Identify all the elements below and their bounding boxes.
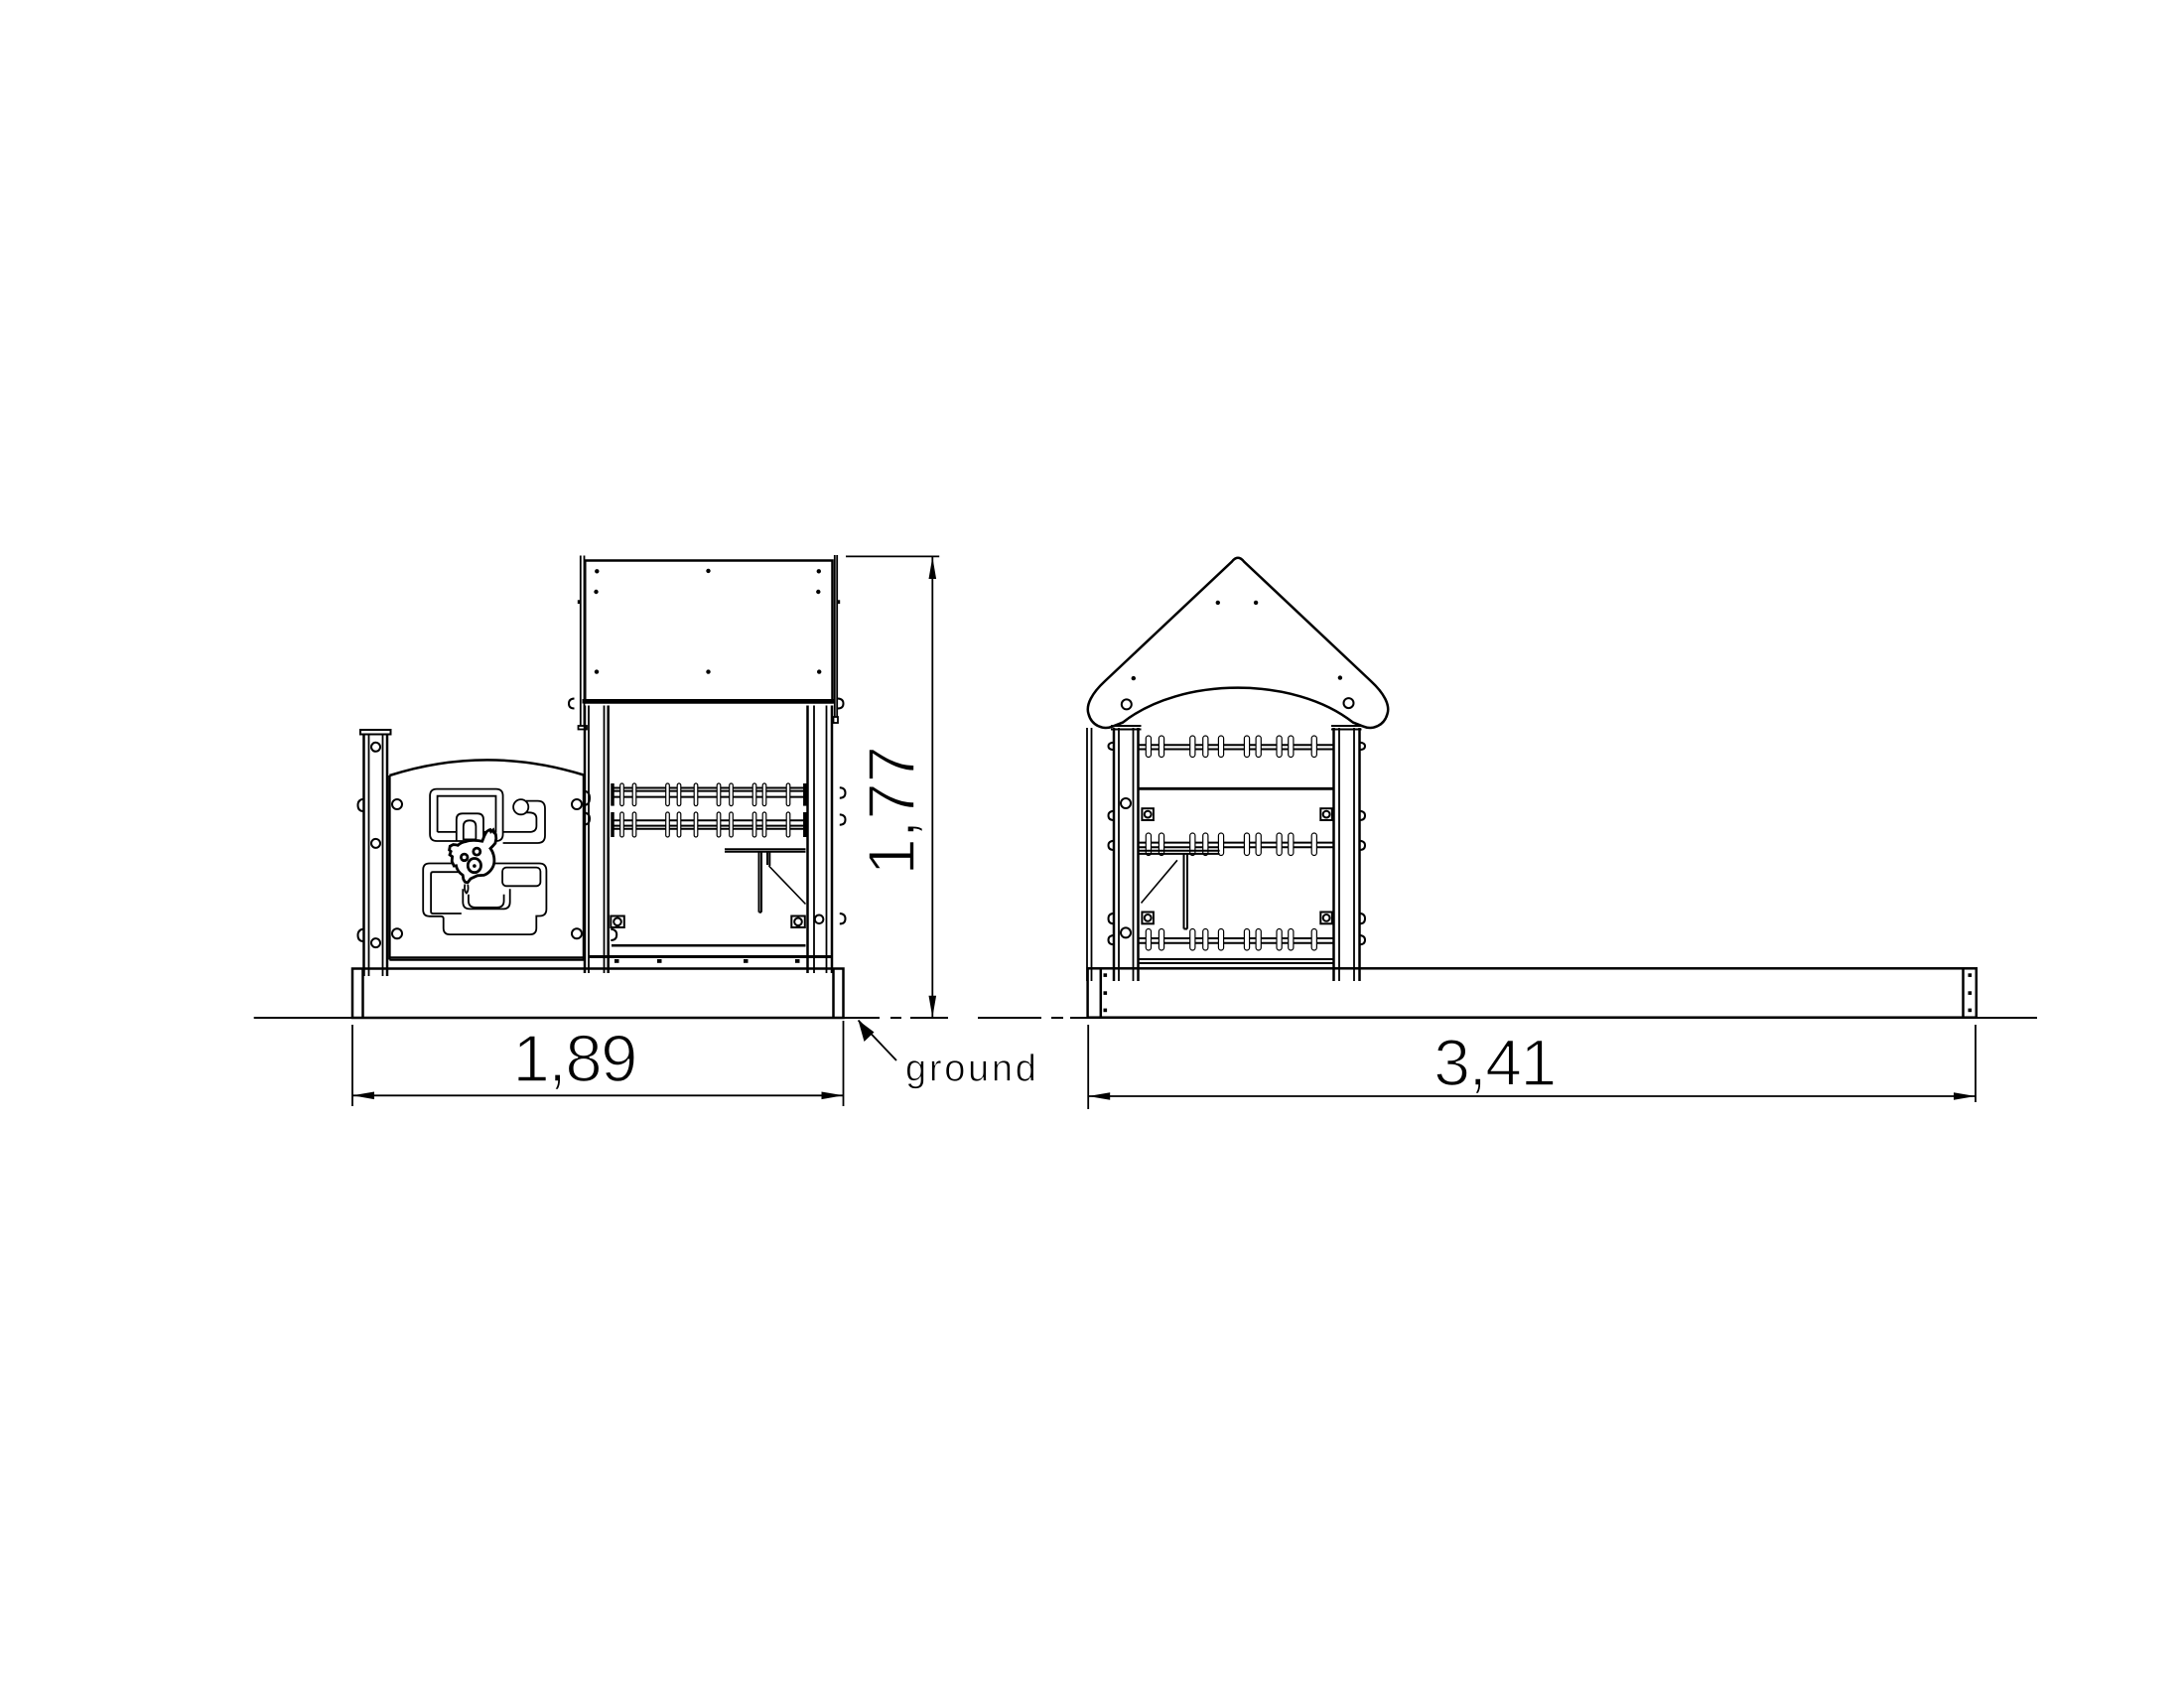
svg-text:3,41: 3,41 (1433, 1026, 1555, 1099)
svg-text:1,77: 1,77 (855, 746, 929, 875)
svg-text:ground: ground (905, 1049, 1039, 1090)
svg-text:1,89: 1,89 (512, 1022, 635, 1096)
